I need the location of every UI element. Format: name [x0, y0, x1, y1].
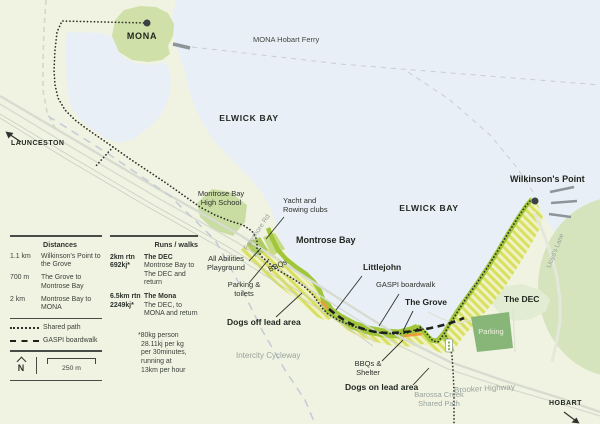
- intercity-cycleway-label: Intercity Cycleway: [236, 351, 300, 360]
- elwick-bay-east-label: ELWICK BAY: [398, 204, 460, 214]
- distance-row: 2 km Montrose Bay to MONA: [10, 296, 102, 313]
- energy-footnote: *80kg person 28.11kj per kg per 30minute…: [141, 332, 198, 376]
- legend-divider: [36, 357, 37, 374]
- mona-label: MONA: [120, 31, 164, 41]
- run-row: 2km rtn 692kj* The DEC Montrose Bay to T…: [110, 254, 198, 289]
- path-endpoint-marker-mona: [144, 20, 151, 27]
- hobart-arrow-icon: [564, 412, 580, 424]
- dogs-off-lead-label: Dogs off lead area: [227, 318, 301, 328]
- legend-rule: [10, 318, 102, 320]
- gaspi-boardwalk-sample-icon: [10, 340, 39, 342]
- legend-rule: [10, 350, 102, 352]
- montrose-bay-label: Montrose Bay: [296, 235, 356, 245]
- parkland-circle: [538, 197, 600, 377]
- legend-rule: [10, 380, 102, 382]
- yacht-rowing-clubs-label: Yacht and Rowing clubs: [283, 197, 328, 214]
- gaspi-boardwalk-label: GASPI boardwalk: [376, 281, 435, 290]
- wilkinsons-point-label: Wilkinson's Point: [510, 174, 585, 184]
- littlejohn-label: Littlejohn: [363, 263, 401, 273]
- run-row: 6.5km rtn 2249kj* The Mona The DEC, to M…: [110, 293, 198, 319]
- runs-title: Runs / walks: [110, 240, 198, 249]
- parking-toilets-label: Parking & toilets: [222, 281, 266, 298]
- north-arrow-icon: N: [10, 358, 32, 373]
- legend-gaspi-boardwalk: GASPI boardwalk: [10, 336, 102, 345]
- parking-label: Parking: [470, 328, 512, 337]
- shared-path-sample-icon: [10, 327, 39, 329]
- launceston-label: LAUNCESTON: [11, 140, 64, 148]
- map-canvas: MONA MONA Hobart Ferry ELWICK BAY ELWICK…: [0, 0, 600, 424]
- legend-distances: Distances 1.1 km Wilkinson's Point to th…: [10, 230, 102, 381]
- bbqs-shelter-label: BBQs & Shelter: [346, 360, 390, 377]
- legend-shared-path: Shared path: [10, 323, 102, 332]
- high-school-label: Montrose Bay High School: [192, 190, 250, 207]
- distances-title: Distances: [10, 240, 102, 249]
- distance-row: 700 m The Grove to Montrose Bay: [10, 274, 102, 291]
- legend-rule: [10, 235, 102, 237]
- hobart-label: HOBART: [549, 400, 582, 408]
- distance-row: 1.1 km Wilkinson's Point to the Grove: [10, 253, 102, 270]
- legend-rule: [110, 235, 198, 237]
- legend-runs: Runs / walks 2km rtn 692kj* The DEC Mont…: [110, 230, 198, 376]
- the-grove-label: The Grove: [405, 298, 447, 308]
- north-and-scale: N 250 m: [10, 356, 102, 375]
- elwick-bay-north-label: ELWICK BAY: [213, 114, 285, 124]
- crossing-icon: [446, 339, 453, 352]
- the-dec-label: The DEC: [504, 295, 539, 305]
- scale-bar: 250 m: [41, 358, 102, 372]
- mona-hobart-ferry-label: MONA Hobart Ferry: [253, 36, 319, 45]
- all-abilities-playground-label: All Abilities Playground: [202, 255, 250, 272]
- path-endpoint-marker-wilkinsons: [532, 198, 539, 205]
